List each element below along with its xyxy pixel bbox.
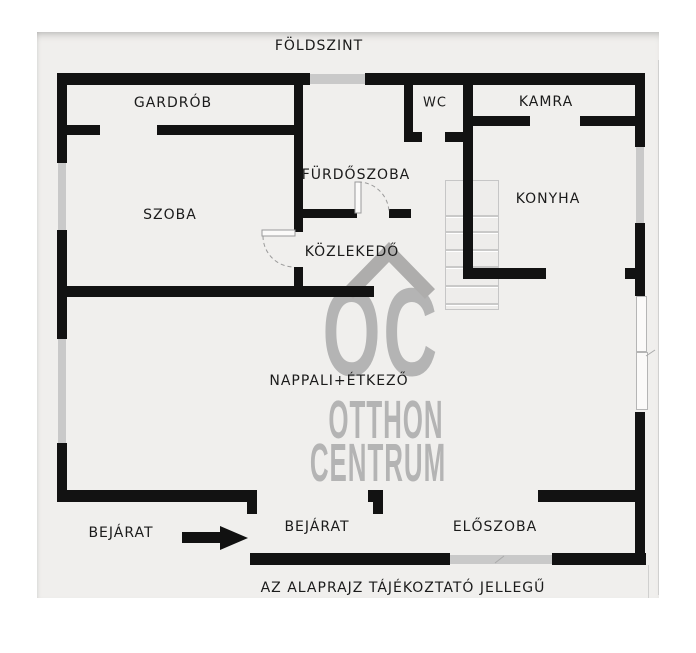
terrace-door xyxy=(636,296,647,352)
wall xyxy=(57,125,100,135)
entrance-label-outside: BEJÁRAT xyxy=(88,525,153,541)
room-label-konyha: KONYHA xyxy=(516,191,581,207)
window-marker xyxy=(58,163,66,230)
wall xyxy=(445,132,464,142)
floor-plan-screenshot: OC OTTHON CENTRUM xyxy=(0,0,696,653)
entrance-arrow-icon xyxy=(182,532,220,543)
wall xyxy=(389,209,411,218)
stair-tread-line xyxy=(446,303,498,305)
entrance-arrow-icon xyxy=(220,526,248,550)
room-label-gardrob: GARDRÓB xyxy=(134,95,212,111)
wall xyxy=(463,268,546,279)
wall xyxy=(635,412,645,565)
watermark: OC OTTHON CENTRUM xyxy=(37,32,659,598)
wall xyxy=(57,230,67,339)
wall xyxy=(250,553,450,565)
watermark-name-line2: CENTRUM xyxy=(310,436,446,490)
wall xyxy=(57,73,67,163)
window-marker xyxy=(310,74,365,84)
wall xyxy=(635,73,645,147)
wall xyxy=(157,125,297,135)
floor-plan-canvas: OC OTTHON CENTRUM xyxy=(37,32,659,598)
room-label-kozlekedo: KÖZLEKEDŐ xyxy=(305,244,400,260)
wall xyxy=(538,490,645,502)
room-label-kamra: KAMRA xyxy=(519,94,573,110)
wall xyxy=(580,116,641,126)
window-marker xyxy=(636,147,644,223)
wall xyxy=(57,286,374,297)
wall xyxy=(552,553,646,565)
wall xyxy=(473,116,530,126)
wall xyxy=(625,268,637,279)
room-label-furdoszoba: FÜRDŐSZOBA xyxy=(302,167,411,183)
room-label-wc: WC xyxy=(423,96,447,111)
entry-door-marker xyxy=(450,555,552,564)
wall xyxy=(404,132,422,142)
room-label-nappali-etkezo: NAPPALI+ÉTKEZŐ xyxy=(269,373,408,389)
entrance-label-porch: BEJÁRAT xyxy=(284,519,349,535)
room-label-eloszoba: ELŐSZOBA xyxy=(453,519,537,535)
wall xyxy=(57,490,250,502)
terrace-door xyxy=(636,352,648,410)
room-label-szoba: SZOBA xyxy=(143,207,197,223)
wall xyxy=(247,490,257,514)
wall xyxy=(635,223,645,296)
stair-tread-line xyxy=(446,285,498,287)
wall xyxy=(463,73,473,278)
disclaimer-text: AZ ALAPRAJZ TÁJÉKOZTATÓ JELLEGŰ xyxy=(261,580,546,596)
wall xyxy=(373,490,383,514)
wall xyxy=(294,209,357,218)
wall xyxy=(57,73,310,85)
floor-title: FÖLDSZINT xyxy=(275,38,363,54)
window-marker xyxy=(58,339,66,443)
